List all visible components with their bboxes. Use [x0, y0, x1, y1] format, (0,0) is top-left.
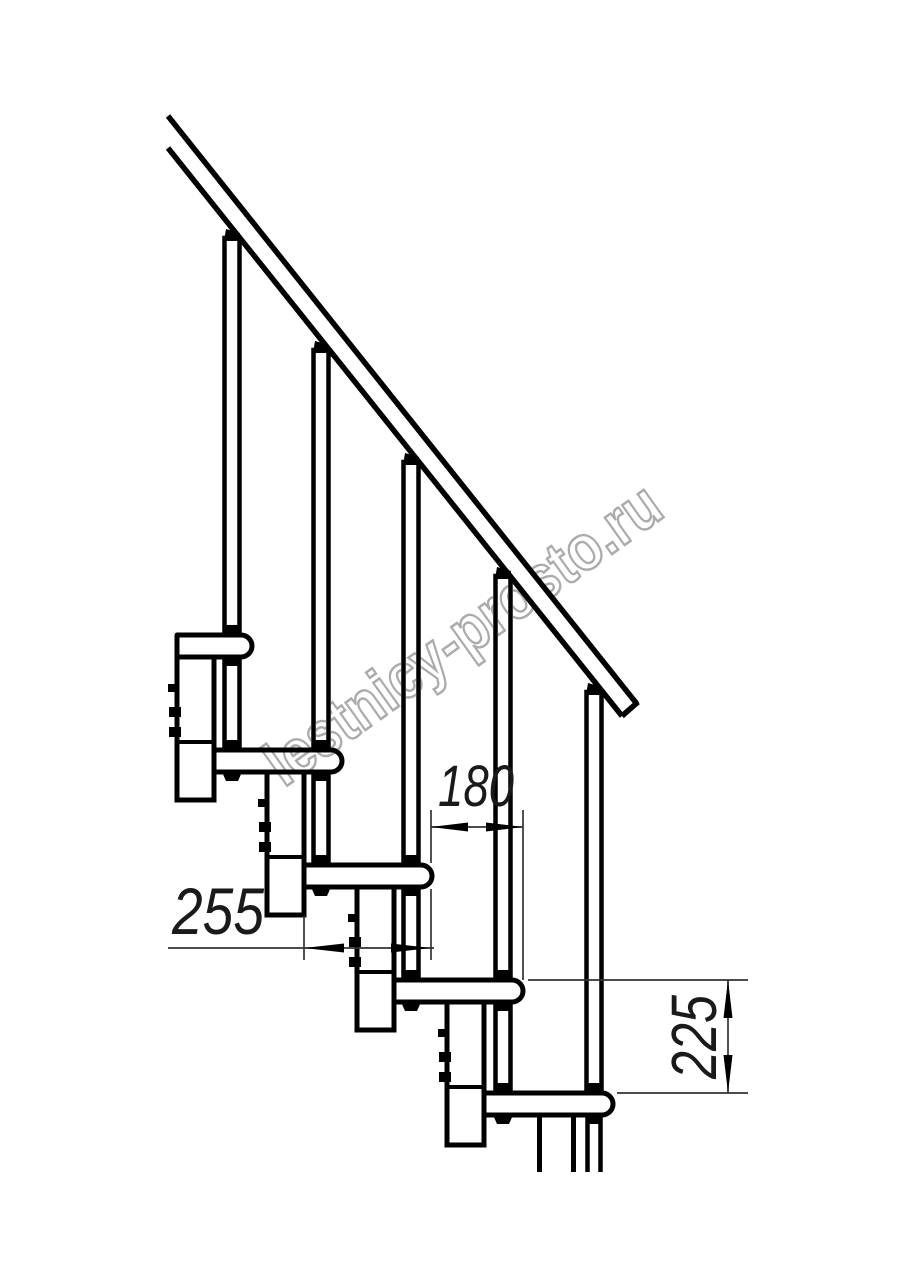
baluster-1 — [225, 238, 240, 752]
drawing-page: lestnicy-prosto.ru — [0, 0, 914, 1280]
tread-3 — [304, 865, 432, 887]
staircase-drawing: lestnicy-prosto.ru — [0, 0, 914, 1280]
cut-tails — [588, 1118, 601, 1172]
support-module-5 — [540, 1115, 574, 1172]
support-module-3 — [348, 887, 394, 1030]
dimension-label-225: 225 — [658, 995, 730, 1080]
support-module-1 — [168, 657, 214, 800]
tread-4 — [394, 980, 523, 1002]
dimension-label-255: 255 — [171, 874, 264, 948]
baluster-2 — [314, 350, 329, 867]
tread-1 — [177, 635, 252, 657]
dimension-label-180: 180 — [438, 754, 514, 819]
baluster-4 — [496, 576, 511, 1095]
baluster-3 — [404, 462, 419, 982]
support-module-4 — [438, 1002, 484, 1145]
baluster-5 — [587, 692, 602, 1090]
tread-5 — [484, 1093, 613, 1115]
